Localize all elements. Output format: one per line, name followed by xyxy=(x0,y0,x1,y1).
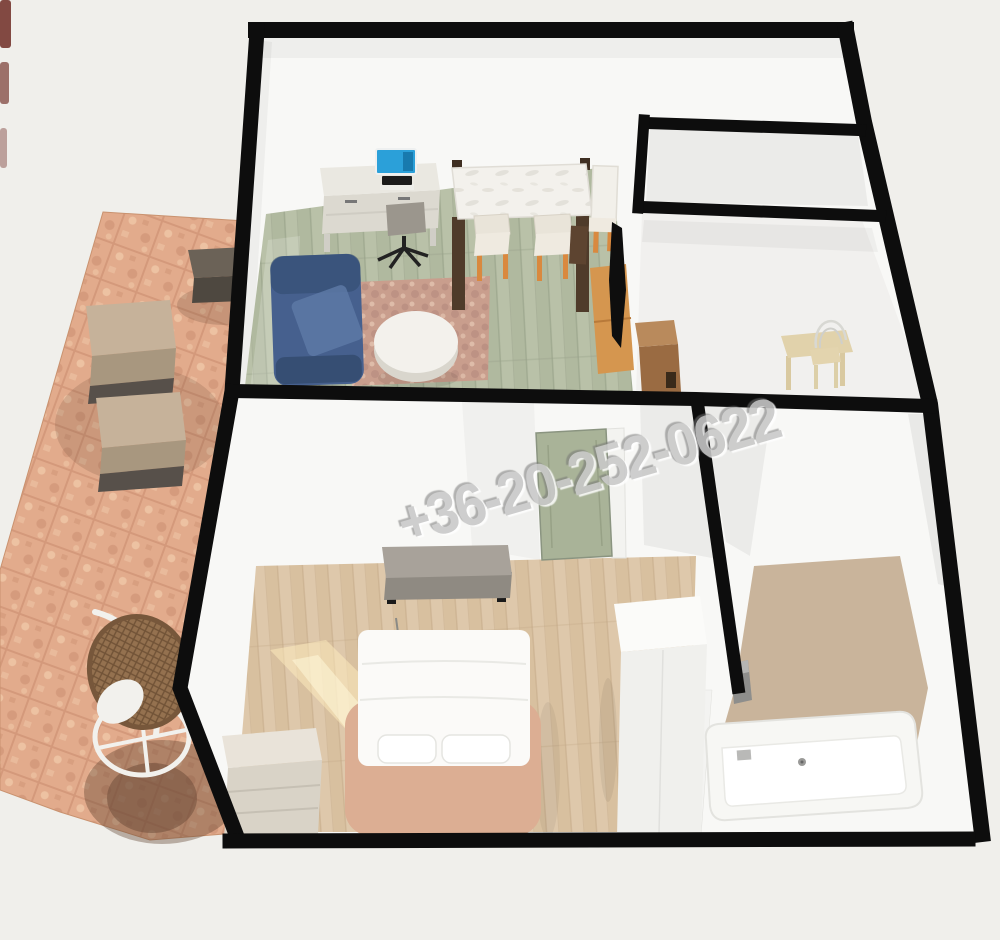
outdoor-armchair xyxy=(86,300,176,404)
wardrobe-shadow xyxy=(599,678,617,802)
wall-niche-left xyxy=(638,120,644,208)
wall-shelf xyxy=(569,226,588,265)
outdoor-armchair xyxy=(96,392,186,492)
shoe-cabinet xyxy=(635,320,681,395)
bed xyxy=(345,618,541,836)
sofa xyxy=(270,253,366,386)
bathtub-faucet xyxy=(737,750,752,761)
pillow xyxy=(378,735,436,763)
closet-niche-floor xyxy=(646,128,868,206)
keyboard xyxy=(380,176,414,190)
computer-monitor xyxy=(376,149,416,175)
wall-bottom xyxy=(230,839,968,841)
wardrobe xyxy=(614,596,707,836)
wall-niche-top xyxy=(646,123,860,130)
bathtub xyxy=(706,712,922,820)
photo-artifact-smudges xyxy=(0,0,11,168)
bench xyxy=(382,545,512,604)
floorplan-svg xyxy=(0,0,1000,940)
round-coffee-table xyxy=(374,311,458,382)
floorplan-render: +36-20-252-0622 xyxy=(0,0,1000,940)
pillow xyxy=(442,735,510,763)
bedroom-door xyxy=(536,428,626,560)
